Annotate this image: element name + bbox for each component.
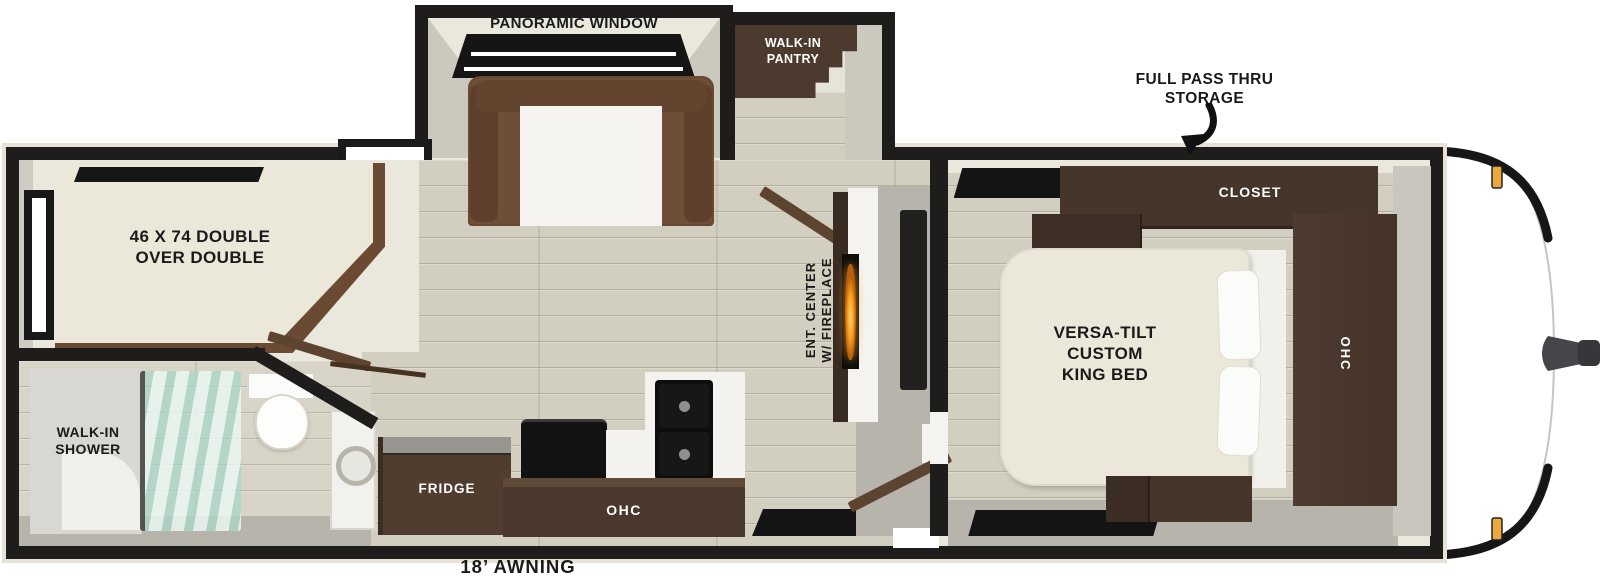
walk-in-pantry-label: WALK-IN PANTRY: [740, 36, 846, 67]
bunk-window-icon: [24, 190, 54, 340]
ent-center-label: ENT. CENTER W/ FIREPLACE: [803, 225, 839, 395]
kitchen-ohc-label: OHC: [503, 502, 745, 519]
down-arrow-icon: [1178, 103, 1224, 157]
sink-drain-icon: [679, 401, 690, 412]
sofa-bed-mat: [520, 106, 662, 226]
bedroom-doorway: [930, 412, 948, 464]
stove-icon: [521, 419, 607, 485]
toilet-bowl-icon: [255, 394, 309, 450]
floorplan: PANORAMIC WINDOW WALK-IN PANTRY 46 X 74 …: [0, 0, 1600, 581]
marker-light-icon: [1492, 518, 1502, 540]
panoramic-window-icon: [452, 34, 695, 78]
king-bed-label: VERSA-TILT CUSTOM KING BED: [1010, 322, 1200, 385]
kitchen-ohc-cabinet: OHC: [503, 478, 745, 537]
shower-glass: [140, 371, 241, 531]
fridge-vent: [383, 437, 511, 455]
bedroom-right-wallface: [1393, 166, 1431, 536]
hitch-coupler: [1578, 340, 1600, 366]
panoramic-window-label: PANORAMIC WINDOW: [433, 15, 715, 34]
bedroom-wall: [930, 160, 948, 412]
flame-icon: [845, 264, 856, 360]
bedroom-wall: [930, 464, 948, 536]
kitchen-sink-icon: [655, 380, 713, 480]
closet-lower-cabinet: [1032, 214, 1142, 252]
pantry-floor: [735, 92, 847, 160]
walk-in-shower-label: WALK-IN SHOWER: [36, 424, 140, 459]
nightstand-drawer: [1106, 476, 1150, 522]
closet-label: CLOSET: [1160, 184, 1340, 201]
bath-wall: [19, 348, 265, 361]
bunk-upper-window-icon: [74, 167, 264, 182]
kitchen-counter-arm: [606, 430, 652, 484]
sink-drain-icon: [679, 449, 690, 460]
tv-icon: [900, 210, 927, 390]
cabinet-top-face: [503, 478, 745, 487]
awning-label: 18’ AWNING: [428, 556, 608, 579]
nightstand: [1106, 476, 1252, 522]
marker-light-icon: [1492, 166, 1502, 188]
sofa: [468, 76, 714, 226]
window-slat: [464, 67, 683, 71]
fridge-label: FRIDGE: [383, 481, 511, 498]
vanity-basin-icon: [336, 446, 376, 486]
pillow: [1216, 365, 1261, 456]
pillow: [1216, 269, 1261, 360]
bunk-bed-label: 46 X 74 DOUBLE OVER DOUBLE: [72, 226, 328, 268]
fridge: FRIDGE: [378, 437, 511, 535]
bedroom-ohc-label: OHC: [1337, 324, 1353, 384]
window-slat: [471, 52, 675, 56]
front-cap: [1428, 140, 1600, 566]
